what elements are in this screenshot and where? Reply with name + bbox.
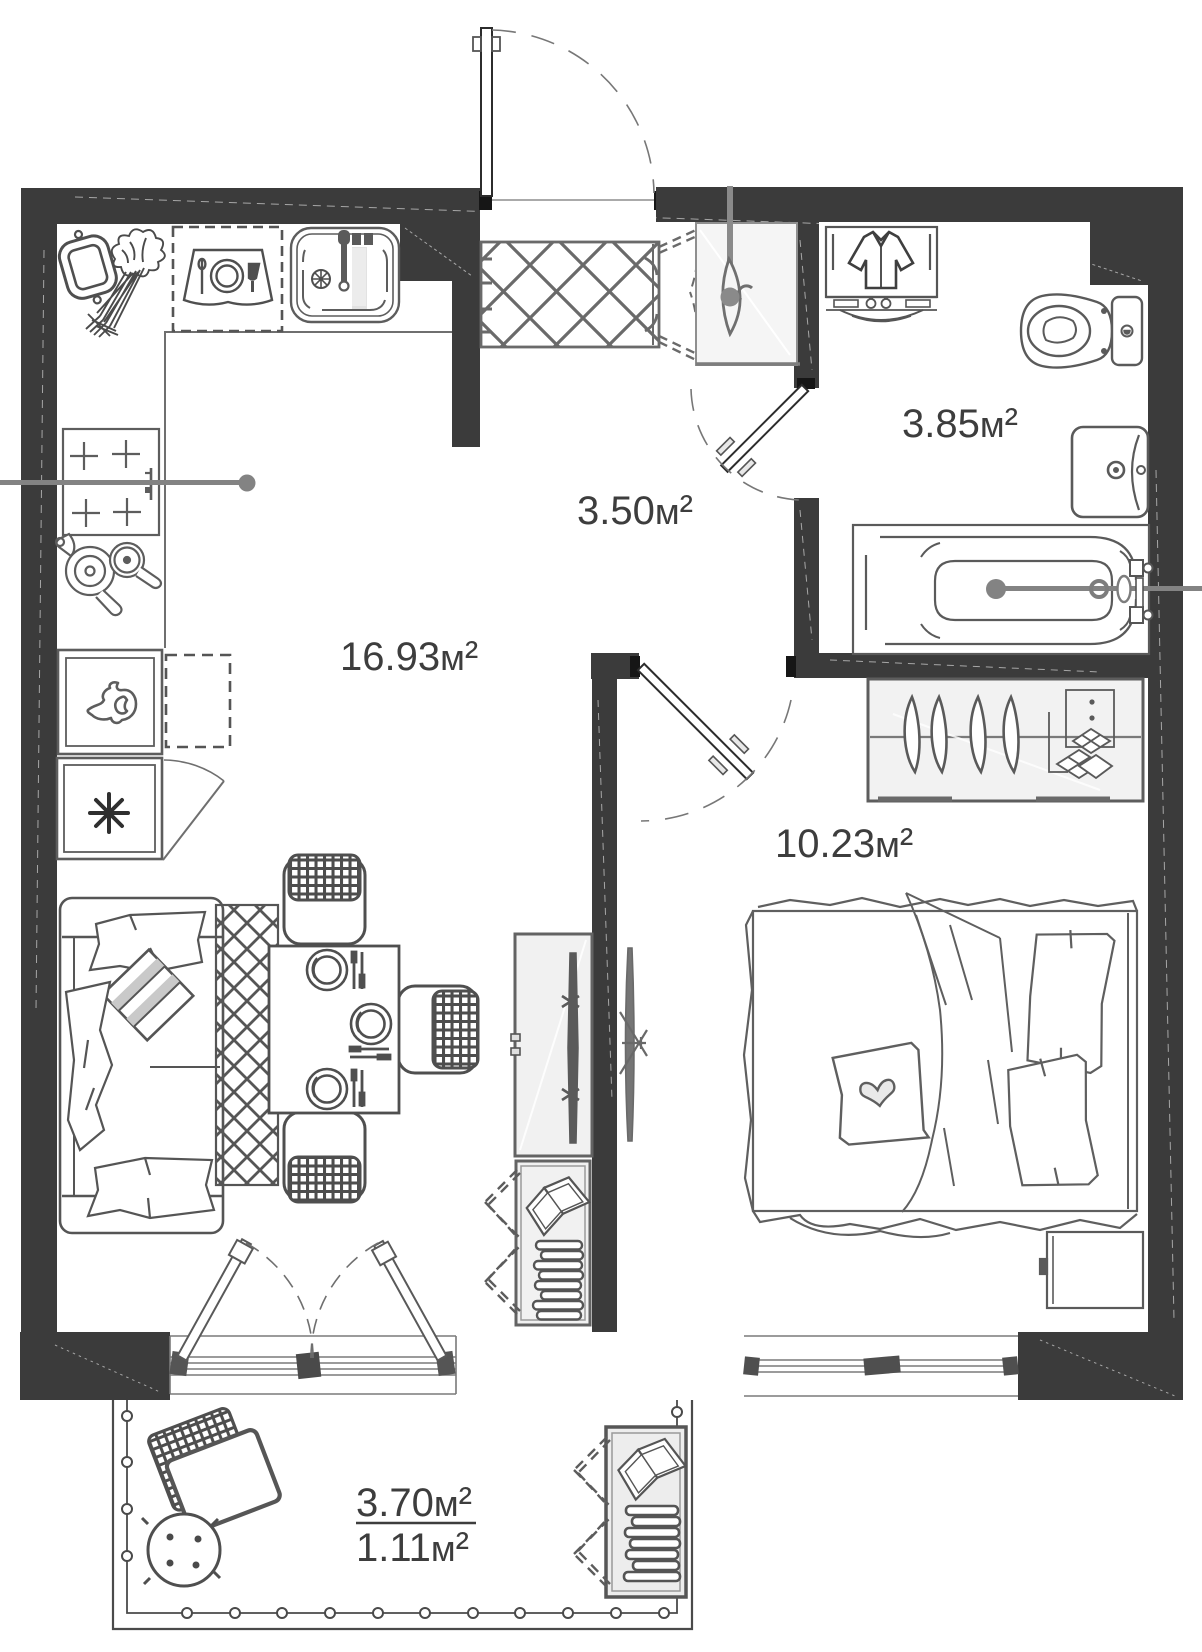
svg-text:1.11м²: 1.11м² <box>356 1525 469 1570</box>
svg-text:16.93м²: 16.93м² <box>340 634 478 679</box>
svg-text:3.70м²: 3.70м² <box>356 1480 472 1525</box>
svg-text:3.85м²: 3.85м² <box>902 401 1018 446</box>
svg-text:3.50м²: 3.50м² <box>577 488 693 533</box>
svg-text:10.23м²: 10.23м² <box>775 821 913 866</box>
